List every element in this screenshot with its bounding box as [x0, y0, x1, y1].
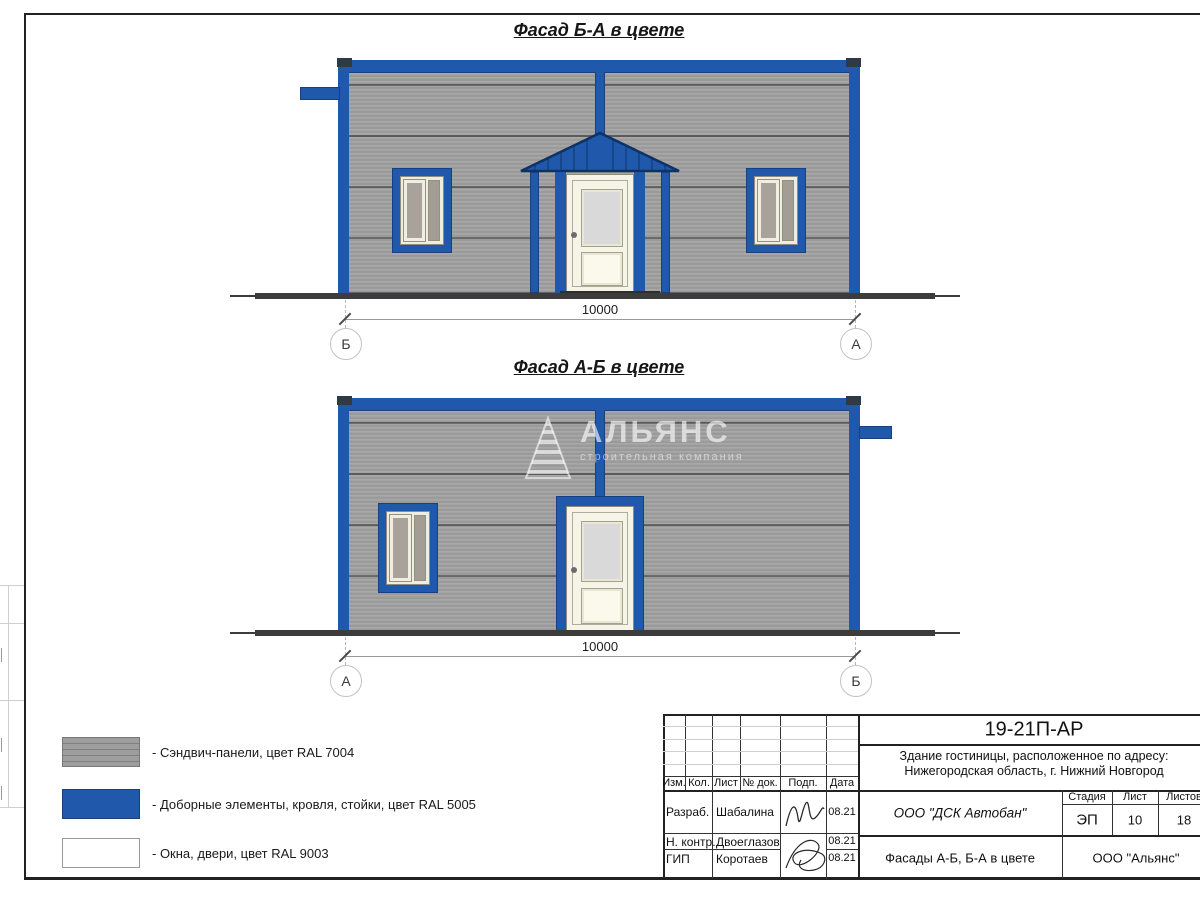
- axis-letter: Б: [851, 673, 860, 689]
- extension-line: [855, 637, 856, 665]
- extension-line: [345, 300, 346, 328]
- axis-marker: А: [330, 665, 362, 697]
- extension-line: [855, 300, 856, 328]
- drain-pipe-left: [300, 87, 340, 100]
- signature: [780, 830, 830, 876]
- dimension-label: 10000: [582, 302, 618, 317]
- tb-line: [1112, 790, 1113, 835]
- tb-line: [663, 849, 780, 850]
- margin-tiny-text: [1, 738, 2, 752]
- margin-table-line: [0, 585, 24, 586]
- sheets-label: Листов: [1166, 791, 1200, 803]
- door-panel: [582, 253, 622, 285]
- sheet-label: Лист: [1123, 791, 1147, 803]
- tb-line: [1158, 790, 1159, 835]
- axis-marker: Б: [840, 665, 872, 697]
- corner-trim-left: [338, 398, 349, 631]
- entrance-canopy: [519, 131, 681, 173]
- door-handle: [571, 232, 577, 238]
- drain-pipe-right: [859, 426, 892, 439]
- ground-line-ext: [935, 632, 960, 634]
- tb-line: [663, 726, 858, 727]
- legend-label: - Окна, двери, цвет RAL 9003: [152, 846, 329, 861]
- sheets-total: 18: [1177, 813, 1191, 828]
- ground-line-ext: [230, 632, 255, 634]
- facade-ab-title: Фасад А-Б в цвете: [338, 357, 860, 378]
- corner-cap-left: [337, 396, 352, 405]
- tb-date: 08.21: [828, 835, 856, 847]
- facade-ba-title: Фасад Б-А в цвете: [338, 20, 860, 41]
- extension-line: [345, 637, 346, 665]
- tb-line: [663, 739, 858, 740]
- door-handle: [571, 567, 577, 573]
- ground-line: [255, 293, 935, 299]
- door-trim-right: [634, 172, 645, 293]
- margin-table-line: [0, 623, 24, 624]
- window-sash: [404, 180, 425, 241]
- tb-line: [663, 790, 1200, 792]
- door-leaf: [572, 512, 628, 625]
- margin-table-line: [8, 585, 9, 807]
- tb-role: Разраб.: [666, 805, 709, 819]
- window-frame: [386, 511, 430, 585]
- tb-line: [663, 764, 858, 765]
- tb-col-list: Лист: [714, 777, 738, 789]
- frame-left: [24, 13, 26, 879]
- tb-date: 08.21: [828, 806, 856, 818]
- window: [378, 503, 438, 593]
- corner-trim-right: [849, 60, 860, 293]
- door-leaf: [572, 180, 628, 287]
- project-address-line1: Здание гостиницы, расположенное по адрес…: [900, 749, 1169, 763]
- tb-role: Н. контр.: [666, 835, 716, 849]
- company-name: ООО "ДСК Автобан": [894, 806, 1027, 821]
- tb-line: [663, 714, 1200, 716]
- dimension-label: 10000: [582, 639, 618, 654]
- tb-name: Шабалина: [716, 805, 774, 819]
- margin-table-line: [0, 807, 24, 808]
- dimension-line: [345, 656, 855, 657]
- drawing-sheet: Фасад Б-А в цвете: [0, 0, 1200, 900]
- frame-bottom: [24, 877, 1200, 880]
- tb-line: [858, 835, 1200, 837]
- door-trim-left: [555, 172, 566, 293]
- legend-label: - Сэндвич-панели, цвет RAL 7004: [152, 745, 354, 760]
- door-glass: [582, 522, 622, 581]
- stage-value: ЭП: [1076, 812, 1098, 829]
- dimension-line: [345, 319, 855, 320]
- downpipe-center: [595, 72, 605, 140]
- tb-line: [826, 849, 858, 850]
- window: [746, 168, 806, 253]
- tb-date: 08.21: [828, 852, 856, 864]
- tb-name: Двоеглазов: [716, 835, 780, 849]
- margin-tiny-text: [1, 786, 2, 800]
- legend-swatch-panels: [62, 737, 140, 767]
- ground-line-ext: [230, 295, 255, 297]
- tb-col-izm: Изм.: [662, 777, 686, 789]
- signature: [783, 794, 825, 832]
- canopy-post-right: [661, 172, 670, 293]
- doc-number: 19-21П-АР: [985, 719, 1084, 742]
- window-frame: [400, 176, 444, 245]
- corner-cap-right: [846, 396, 861, 405]
- axis-marker: А: [840, 328, 872, 360]
- tb-col-doc: № док.: [742, 777, 777, 789]
- window: [392, 168, 452, 253]
- legend-label: - Доборные элементы, кровля, стойки, цве…: [152, 797, 476, 812]
- legend-swatch-trim: [62, 789, 140, 819]
- window-sash: [758, 180, 779, 241]
- margin-table-line: [0, 700, 24, 701]
- window-sash: [390, 515, 411, 581]
- entrance-door: [566, 506, 634, 631]
- organization-name: ООО "Альянс": [1093, 851, 1180, 866]
- axis-marker: Б: [330, 328, 362, 360]
- stage-label: Стадия: [1068, 791, 1106, 803]
- sheet-title: Фасады А-Б, Б-А в цвете: [885, 851, 1035, 866]
- tb-line: [663, 751, 858, 752]
- door-panel: [582, 589, 622, 623]
- canopy-post-left: [530, 172, 539, 293]
- tb-col-podp: Подп.: [788, 777, 817, 789]
- tb-line: [858, 744, 1200, 746]
- axis-letter: А: [851, 336, 860, 352]
- door-glass: [582, 190, 622, 246]
- axis-letter: А: [341, 673, 350, 689]
- tb-line: [858, 714, 860, 879]
- tb-col-kol: Кол.: [688, 777, 710, 789]
- corner-cap-left: [337, 58, 352, 67]
- downpipe-center: [595, 410, 605, 496]
- ground-line: [255, 630, 935, 636]
- tb-col-data: Дата: [830, 777, 854, 789]
- frame-top: [24, 13, 1200, 15]
- entrance-door: [566, 174, 634, 293]
- project-address-line2: Нижегородская область, г. Нижний Новгоро…: [904, 764, 1163, 778]
- corner-cap-right: [846, 58, 861, 67]
- window-pane: [428, 180, 440, 241]
- ground-line-ext: [935, 295, 960, 297]
- window-pane: [414, 515, 426, 581]
- margin-tiny-text: [1, 648, 2, 662]
- window-frame: [754, 176, 798, 245]
- sheet-number: 10: [1128, 813, 1142, 828]
- legend-swatch-windows: [62, 838, 140, 868]
- tb-line: [1062, 804, 1200, 805]
- window-pane: [782, 180, 794, 241]
- axis-letter: Б: [341, 336, 350, 352]
- tb-name: Коротаев: [716, 852, 768, 866]
- tb-role: ГИП: [666, 852, 690, 866]
